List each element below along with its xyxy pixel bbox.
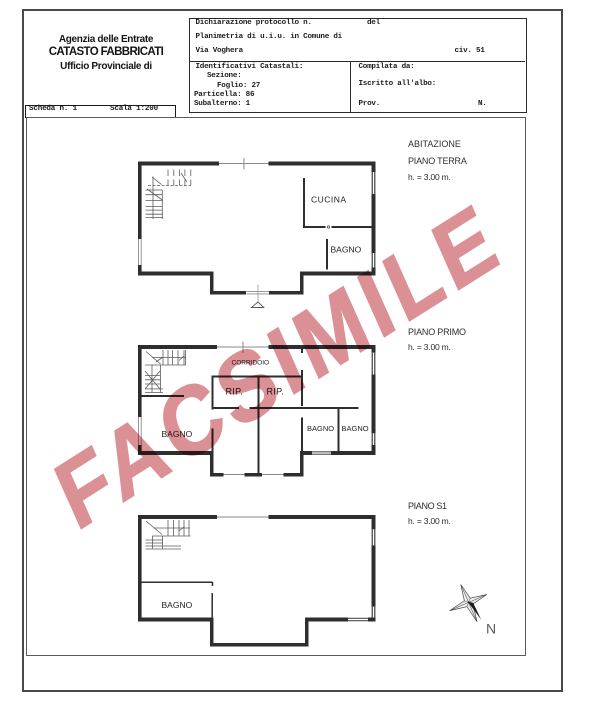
svg-text:BAGNO: BAGNO bbox=[307, 424, 334, 433]
svg-text:N: N bbox=[486, 621, 496, 637]
svg-text:BAGNO: BAGNO bbox=[162, 600, 193, 610]
svg-text:BAGNO: BAGNO bbox=[342, 424, 369, 433]
svg-text:CUCINA: CUCINA bbox=[311, 195, 347, 205]
